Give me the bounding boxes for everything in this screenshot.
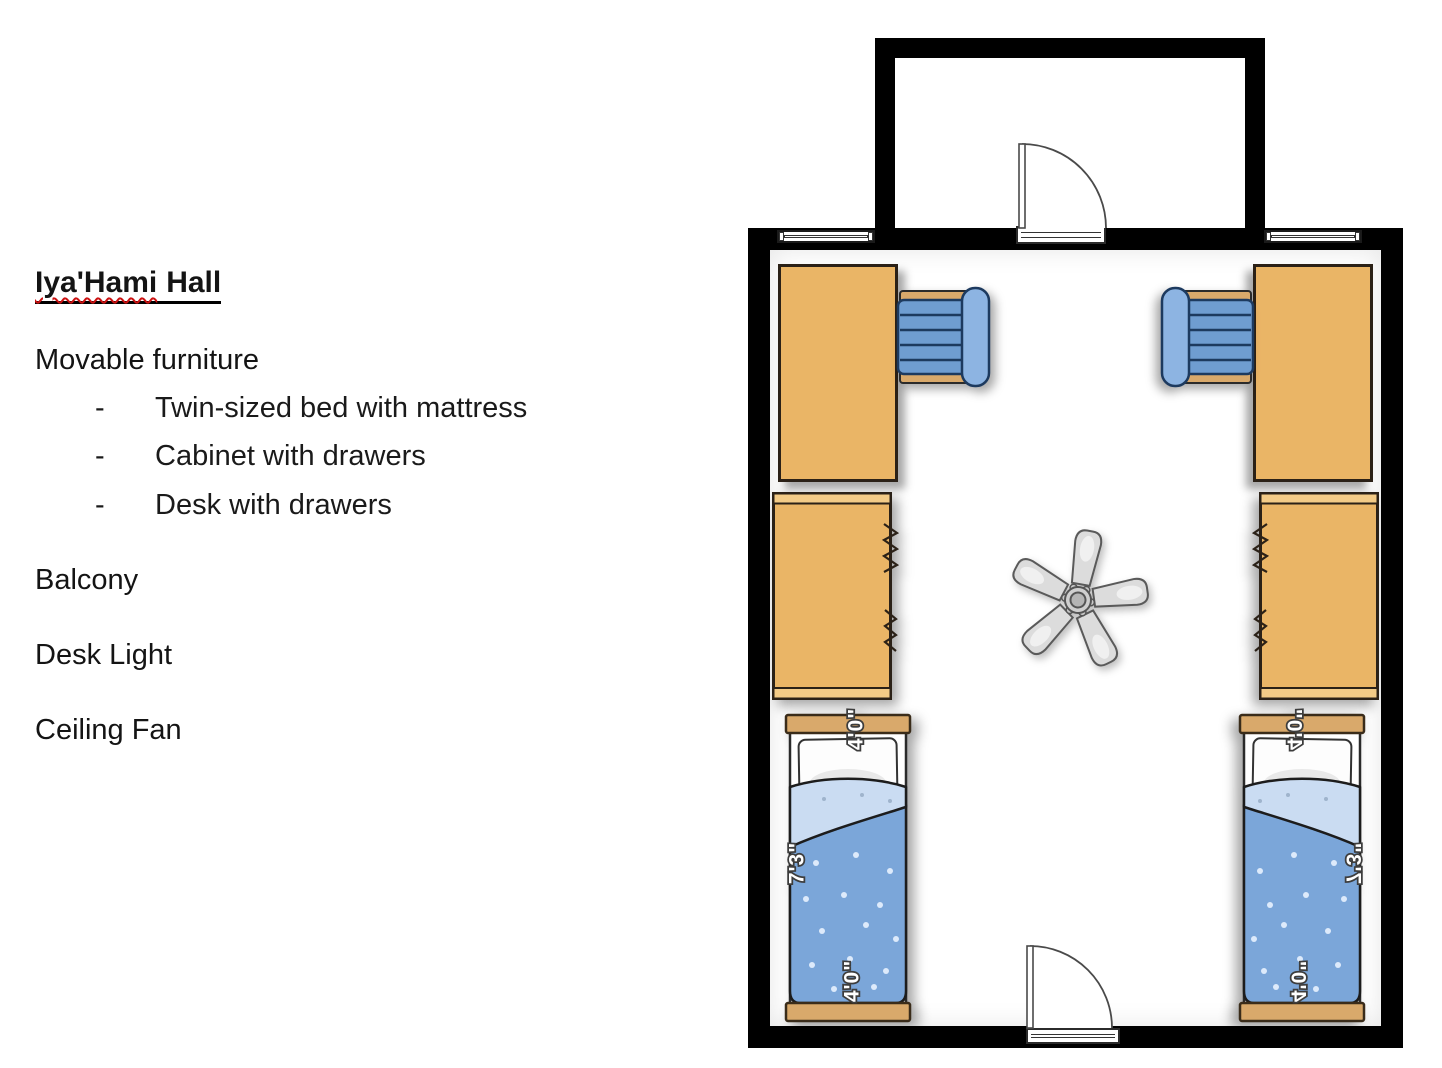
balcony-door-swing-icon <box>1016 142 1108 228</box>
desk-left <box>778 264 898 482</box>
chair-right-icon <box>1159 288 1253 386</box>
window-left <box>777 230 875 243</box>
bullet-dash: - <box>95 440 105 473</box>
bullet-dash: - <box>95 392 105 425</box>
bed-width-label-bottom: 4'0" <box>1287 960 1310 1002</box>
balcony-door-threshold <box>1016 226 1106 244</box>
furniture-item-bed: - Twin-sized bed with mattress <box>35 392 675 432</box>
footboard <box>1240 1003 1364 1021</box>
hall-title-rest: Hall <box>166 266 221 299</box>
bed-right: 4'0" 7'3" 4'0" <box>1238 713 1366 1023</box>
hall-title: Iya'HamiHall <box>35 266 221 304</box>
room-wall-right <box>1381 228 1403 1048</box>
bed-length-label: 7'3" <box>1342 842 1365 884</box>
chair-left-icon <box>898 288 992 386</box>
bed-length-label: 7'3" <box>786 842 809 884</box>
bullet-dash: - <box>95 489 105 522</box>
furniture-item-desk: - Desk with drawers <box>35 489 675 529</box>
room-wall-left <box>748 228 770 1048</box>
desk-right <box>1253 264 1373 482</box>
bed-width-label-top: 4'0" <box>1283 708 1306 750</box>
furniture-item-cabinet: - Cabinet with drawers <box>35 440 675 480</box>
balcony-wall-top <box>875 38 1265 58</box>
feature-ceiling-fan: Ceiling Fan <box>35 714 182 747</box>
balcony-wall-left <box>875 38 895 228</box>
ceiling-fan-icon <box>998 520 1158 680</box>
bed-left: 4'0" 7'3" 4'0" <box>784 713 912 1023</box>
bed-width-label-top: 4'0" <box>845 708 868 750</box>
bed-width-label-bottom: 4'0" <box>841 960 864 1002</box>
cabinet-right-icon <box>1259 492 1379 700</box>
feature-balcony: Balcony <box>35 564 138 597</box>
hall-title-word: Iya'Hami <box>35 266 157 299</box>
floor-plan: 4'0" 7'3" 4'0" 4'0" 7'3" 4'0" <box>748 36 1403 1048</box>
feature-desk-light: Desk Light <box>35 639 172 672</box>
entry-door-threshold <box>1026 1028 1120 1044</box>
entry-door-swing-icon <box>1026 946 1120 1028</box>
window-right <box>1264 230 1362 243</box>
furniture-heading: Movable furniture <box>35 344 259 377</box>
balcony-wall-right <box>1245 38 1265 228</box>
footboard <box>786 1003 910 1021</box>
info-panel: Iya'HamiHall Movable furniture - Twin-si… <box>35 0 695 1068</box>
cabinet-left-icon <box>772 492 892 700</box>
